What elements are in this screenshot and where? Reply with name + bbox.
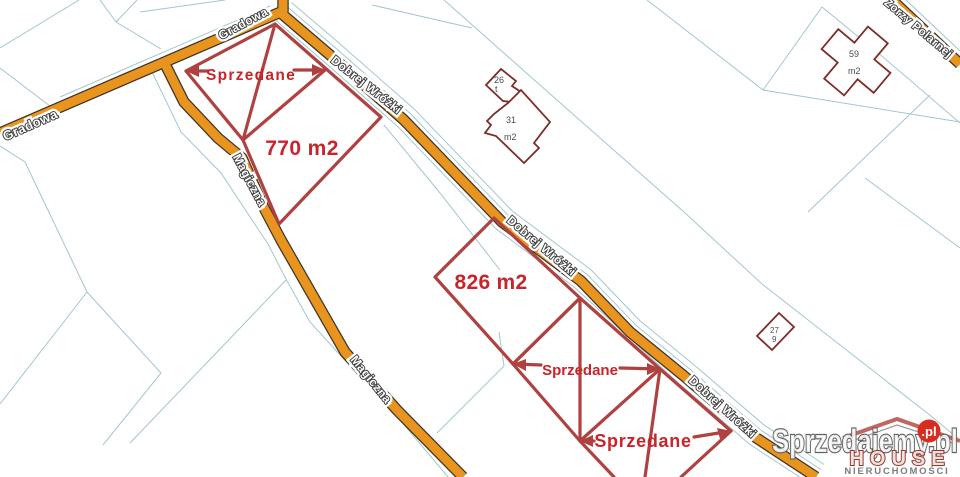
svg-text:27: 27	[770, 326, 779, 335]
svg-text:m2: m2	[504, 132, 517, 142]
svg-text:9: 9	[772, 335, 777, 344]
svg-text:59: 59	[849, 49, 859, 59]
svg-text:Sprzedane: Sprzedane	[206, 67, 296, 84]
svg-text:NIERUCHOMOŚCI: NIERUCHOMOŚCI	[844, 465, 949, 477]
svg-text:.pl: .pl	[921, 424, 936, 439]
svg-text:Sprzedane: Sprzedane	[594, 431, 691, 451]
svg-text:826 m2: 826 m2	[454, 271, 527, 294]
svg-text:m2: m2	[848, 66, 861, 76]
svg-text:770 m2: 770 m2	[265, 137, 339, 160]
svg-text:31: 31	[506, 115, 516, 125]
svg-text:Sprzedane: Sprzedane	[542, 362, 618, 379]
